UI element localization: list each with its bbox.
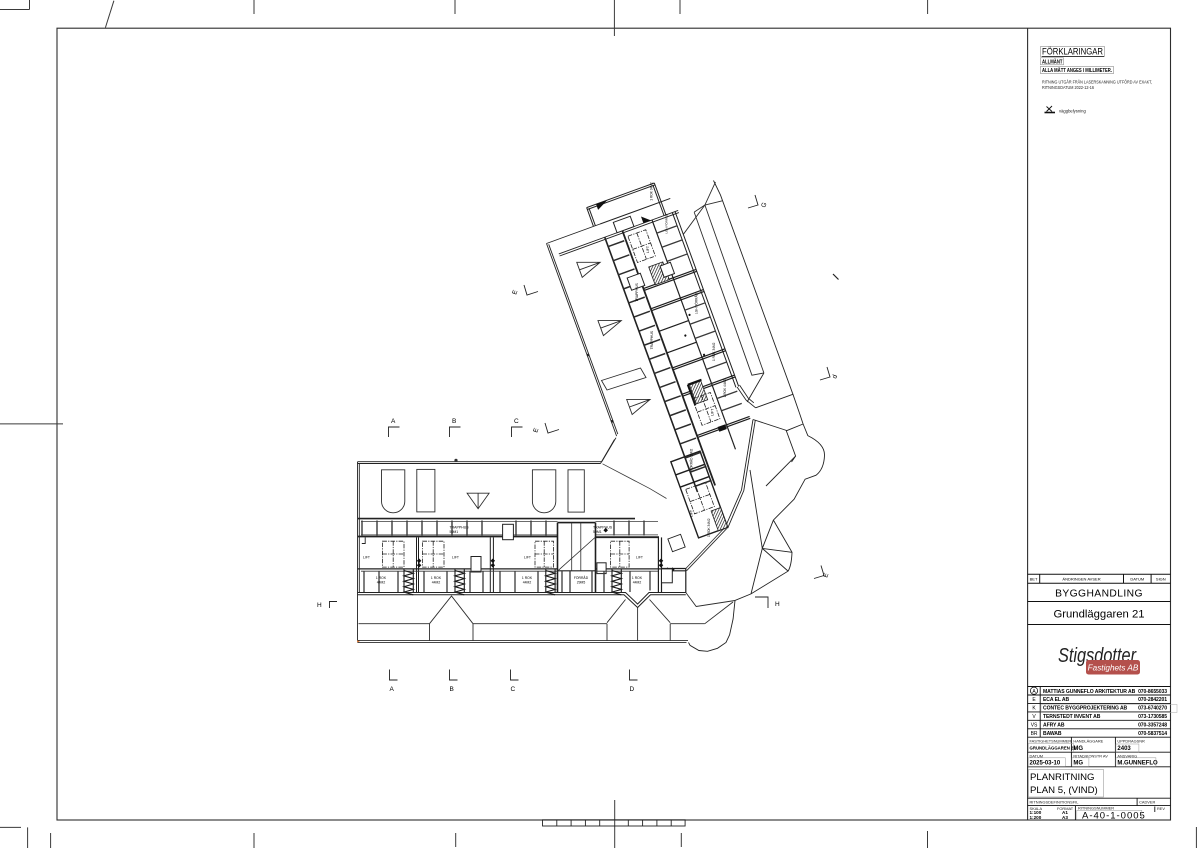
svg-text:ALLMÄNT: ALLMÄNT bbox=[1042, 59, 1063, 66]
svg-text:44M2: 44M2 bbox=[633, 581, 642, 585]
svg-text:1 ROK: 1 ROK bbox=[376, 576, 387, 580]
svg-text:LIFT: LIFT bbox=[646, 246, 650, 253]
svg-text:d: d bbox=[831, 374, 839, 380]
svg-text:MATTIAS GUNNEFLO ARKITEKTUR AB: MATTIAS GUNNEFLO ARKITEKTUR AB bbox=[1043, 689, 1136, 695]
svg-text:1 ROK 34M2: 1 ROK 34M2 bbox=[707, 518, 711, 537]
svg-text:ECA EL AB: ECA EL AB bbox=[1043, 697, 1070, 703]
svg-text:RITNINGSDATUM 2022-12-16: RITNINGSDATUM 2022-12-16 bbox=[1042, 85, 1095, 90]
svg-text:C: C bbox=[511, 686, 516, 693]
svg-text:E: E bbox=[822, 572, 830, 579]
svg-text:A: A bbox=[391, 418, 396, 425]
svg-text:PLANRITNING: PLANRITNING bbox=[1030, 772, 1095, 783]
svg-text:GRUNDLÄGGAREN 21: GRUNDLÄGGAREN 21 bbox=[1030, 746, 1077, 751]
svg-text:1 ROK 34M2: 1 ROK 34M2 bbox=[712, 342, 716, 361]
svg-text:29M5: 29M5 bbox=[577, 581, 586, 585]
svg-text:REV: REV bbox=[1157, 806, 1165, 811]
svg-text:BAWAB: BAWAB bbox=[1043, 731, 1062, 737]
svg-text:1 ROK 44M2: 1 ROK 44M2 bbox=[723, 379, 727, 398]
svg-text:HANDLÄGGARE: HANDLÄGGARE bbox=[1073, 739, 1103, 744]
svg-text:070-2842201: 070-2842201 bbox=[1138, 697, 1167, 703]
svg-text:LIFT: LIFT bbox=[452, 556, 459, 560]
svg-text:BET: BET bbox=[1030, 577, 1038, 582]
svg-text:BYGGHANDLING: BYGGHANDLING bbox=[1055, 589, 1143, 600]
svg-text:LIFT: LIFT bbox=[690, 510, 694, 517]
svg-text:FÖRRÅD 29M2: FÖRRÅD 29M2 bbox=[688, 448, 693, 471]
svg-text:070-8655033: 070-8655033 bbox=[1138, 689, 1167, 695]
svg-text:B: B bbox=[452, 418, 456, 425]
svg-text:TRAPPHUS: TRAPPHUS bbox=[650, 330, 654, 349]
svg-text:E: E bbox=[532, 427, 540, 434]
svg-text:073-6740270: 073-6740270 bbox=[1138, 706, 1167, 712]
svg-text:LIFT: LIFT bbox=[636, 556, 643, 560]
svg-text:E: E bbox=[1032, 697, 1036, 703]
svg-text:H: H bbox=[317, 602, 322, 609]
svg-text:ÄNDRINGEN AVSER: ÄNDRINGEN AVSER bbox=[1062, 577, 1100, 582]
svg-text:1:200: 1:200 bbox=[1030, 815, 1042, 820]
svg-text:C: C bbox=[514, 418, 519, 425]
svg-text:44M2: 44M2 bbox=[432, 581, 441, 585]
svg-text:1 ROK: 1 ROK bbox=[522, 576, 533, 580]
svg-text:A3: A3 bbox=[1062, 815, 1068, 820]
svg-text:TRAPPHUS: TRAPPHUS bbox=[635, 283, 639, 302]
svg-text:LIFT: LIFT bbox=[524, 556, 531, 560]
svg-text:MG: MG bbox=[1073, 761, 1083, 767]
svg-text:A: A bbox=[390, 686, 395, 693]
svg-text:DATUM: DATUM bbox=[1130, 577, 1144, 582]
svg-text:LIFT: LIFT bbox=[363, 556, 370, 560]
svg-text:B: B bbox=[450, 686, 454, 693]
svg-text:G: G bbox=[760, 202, 768, 209]
svg-text:AFRY AB: AFRY AB bbox=[1043, 723, 1065, 729]
svg-text:FASTIGHETSNUMMER: FASTIGHETSNUMMER bbox=[1030, 739, 1072, 744]
svg-text:1 ROK: 1 ROK bbox=[431, 576, 442, 580]
svg-text:H: H bbox=[775, 601, 780, 608]
svg-text:SIGN: SIGN bbox=[1156, 577, 1166, 582]
svg-text:D: D bbox=[630, 686, 635, 693]
svg-text:PLAN 5, (VIND): PLAN 5, (VIND) bbox=[1030, 785, 1098, 796]
svg-text:Grundläggaren 21: Grundläggaren 21 bbox=[1053, 609, 1144, 621]
svg-text:LIFT: LIFT bbox=[710, 409, 714, 416]
svg-text:1 ROK: 1 ROK bbox=[632, 576, 643, 580]
svg-text:070-3357248: 070-3357248 bbox=[1138, 723, 1167, 729]
svg-text:RITNINGSDEFINITIONSFIL: RITNINGSDEFINITIONSFIL bbox=[1030, 799, 1080, 804]
svg-text:CADVER: CADVER bbox=[1139, 799, 1155, 804]
svg-text:M.GUNNEFLO: M.GUNNEFLO bbox=[1117, 761, 1158, 767]
svg-text:Fastighets AB: Fastighets AB bbox=[1088, 664, 1139, 673]
svg-text:2025-03-10: 2025-03-10 bbox=[1030, 761, 1061, 767]
svg-text:UPPDRAGSNR: UPPDRAGSNR bbox=[1117, 739, 1145, 744]
svg-text:59M1: 59M1 bbox=[450, 530, 459, 534]
svg-text:44M2: 44M2 bbox=[523, 581, 532, 585]
svg-text:BR: BR bbox=[1031, 731, 1038, 737]
svg-text:2403: 2403 bbox=[1117, 746, 1131, 752]
svg-text:E: E bbox=[511, 289, 519, 296]
svg-text:44M2: 44M2 bbox=[377, 581, 386, 585]
svg-text:VS: VS bbox=[1031, 723, 1038, 729]
svg-text:K: K bbox=[1032, 706, 1036, 712]
svg-text:TERNSTEDT INVENT AB: TERNSTEDT INVENT AB bbox=[1043, 714, 1101, 720]
svg-text:1 ROK 34M2: 1 ROK 34M2 bbox=[649, 182, 653, 201]
svg-text:FÖRKLARINGAR: FÖRKLARINGAR bbox=[1042, 47, 1103, 57]
svg-text:RITNING UTGÅR FRÅN LASERSKANNI: RITNING UTGÅR FRÅN LASERSKANNING UTFÖRD … bbox=[1042, 80, 1152, 85]
svg-text:CONTEC BYGGPROJEKTERING AB: CONTEC BYGGPROJEKTERING AB bbox=[1043, 706, 1128, 712]
svg-text:FÖRRÅD: FÖRRÅD bbox=[574, 575, 589, 580]
svg-text:väggbelysning: väggbelysning bbox=[1059, 109, 1086, 114]
svg-text:V: V bbox=[1032, 714, 1036, 720]
svg-text:073-1730585: 073-1730585 bbox=[1138, 714, 1167, 720]
svg-text:070-5837514: 070-5837514 bbox=[1138, 731, 1167, 737]
svg-text:MG: MG bbox=[1073, 746, 1083, 752]
svg-text:59M1: 59M1 bbox=[593, 530, 602, 534]
svg-text:LGH FÖRRÅD: LGH FÖRRÅD bbox=[694, 292, 699, 314]
svg-text:LGH FÖRRÅD: LGH FÖRRÅD bbox=[663, 213, 668, 234]
svg-text:ALLA MÅTT ANGES I MILLIMETER.: ALLA MÅTT ANGES I MILLIMETER. bbox=[1042, 67, 1112, 74]
svg-text:TRAPPHUS: TRAPPHUS bbox=[450, 526, 470, 530]
